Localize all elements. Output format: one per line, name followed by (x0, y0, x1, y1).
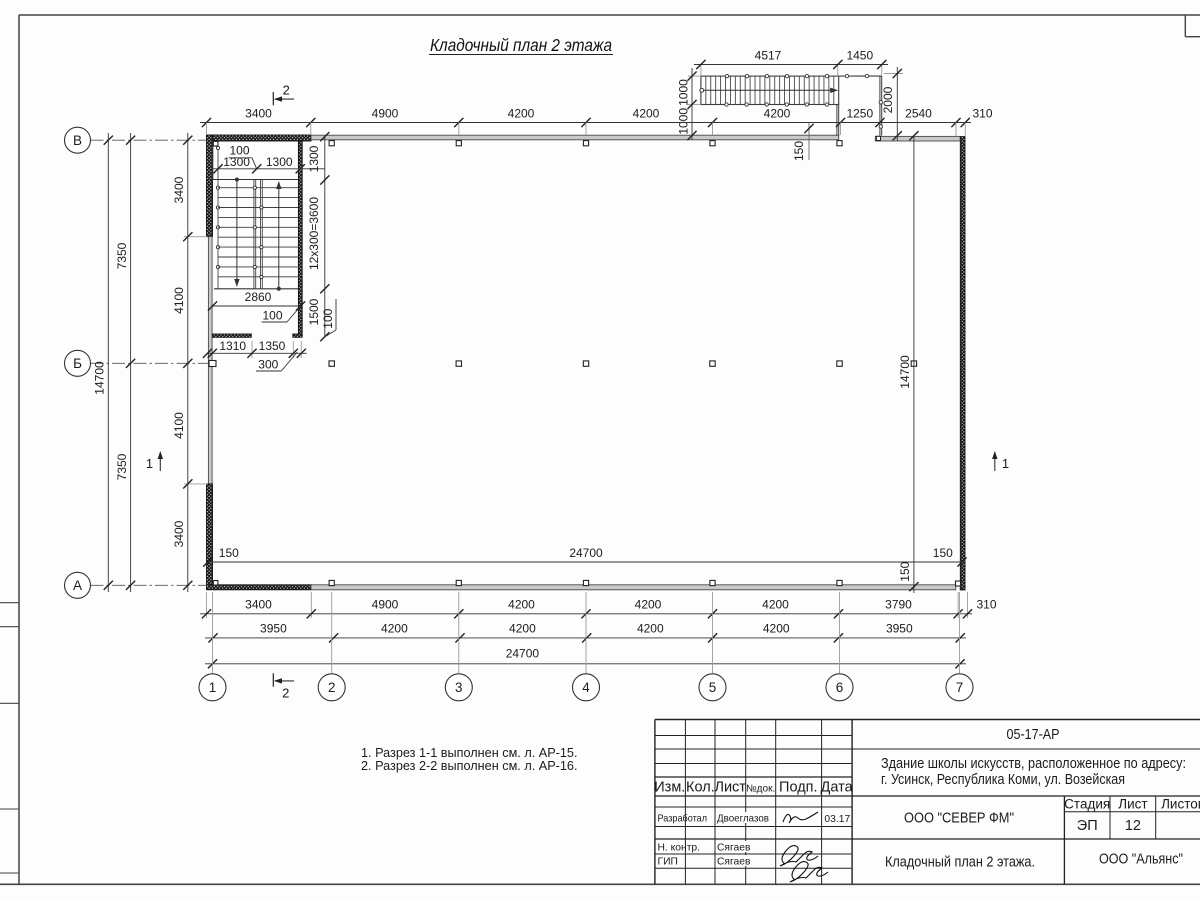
svg-text:4200: 4200 (508, 598, 535, 612)
svg-text:100: 100 (229, 144, 249, 158)
svg-text:4200: 4200 (381, 622, 408, 636)
svg-text:1: 1 (146, 456, 153, 471)
svg-text:Б: Б (73, 356, 82, 371)
svg-text:Лист: Лист (714, 780, 746, 796)
svg-text:Лист: Лист (1118, 796, 1147, 811)
svg-text:А: А (73, 578, 82, 593)
svg-text:1300: 1300 (307, 145, 321, 172)
svg-text:3400: 3400 (172, 176, 186, 203)
svg-text:12х300=3600: 12х300=3600 (307, 197, 321, 270)
svg-text:1000: 1000 (676, 79, 690, 106)
svg-text:1350: 1350 (259, 339, 286, 353)
svg-text:7350: 7350 (115, 453, 129, 480)
svg-text:Здание школы искусств, располо: Здание школы искусств, расположенное по … (881, 756, 1186, 772)
svg-text:ГИП: ГИП (658, 857, 678, 868)
svg-text:Изм.: Изм. (654, 780, 685, 796)
svg-text:2540: 2540 (905, 106, 932, 120)
svg-text:6: 6 (836, 680, 844, 695)
svg-text:Н. контр.: Н. контр. (658, 843, 701, 854)
svg-text:3: 3 (455, 680, 463, 695)
svg-text:4517: 4517 (755, 48, 782, 62)
svg-text:2. Разрез 2-2 выполнен см. л.: 2. Разрез 2-2 выполнен см. л. АР-16. (361, 758, 578, 773)
svg-text:1500: 1500 (307, 298, 321, 325)
svg-text:1310: 1310 (219, 339, 246, 353)
svg-text:4900: 4900 (372, 598, 399, 612)
svg-text:150: 150 (898, 561, 912, 581)
svg-text:1300: 1300 (266, 155, 293, 169)
svg-text:3400: 3400 (172, 520, 186, 547)
svg-text:310: 310 (976, 598, 996, 612)
svg-text:2000: 2000 (881, 86, 895, 113)
svg-text:7350: 7350 (115, 242, 129, 269)
svg-text:100: 100 (321, 308, 335, 328)
svg-text:5: 5 (709, 680, 717, 695)
svg-text:4100: 4100 (172, 287, 186, 314)
svg-text:Кладочный план 2 этажа: Кладочный план 2 этажа (430, 35, 612, 55)
svg-text:1: 1 (1002, 456, 1009, 471)
svg-text:4200: 4200 (633, 106, 660, 120)
svg-text:ЭП: ЭП (1077, 818, 1098, 834)
svg-text:3950: 3950 (886, 622, 913, 636)
svg-text:№док.: №док. (746, 784, 775, 795)
svg-text:14700: 14700 (93, 361, 107, 395)
svg-text:3950: 3950 (260, 622, 287, 636)
svg-text:4: 4 (582, 680, 590, 695)
svg-text:1450: 1450 (846, 48, 873, 62)
svg-text:24700: 24700 (569, 546, 603, 560)
svg-text:2860: 2860 (245, 290, 272, 304)
svg-text:100: 100 (262, 309, 282, 323)
svg-text:4200: 4200 (635, 598, 662, 612)
svg-text:Кол.: Кол. (686, 780, 715, 796)
svg-text:300: 300 (258, 358, 278, 372)
svg-text:14700: 14700 (898, 355, 912, 389)
svg-text:1: 1 (209, 680, 217, 695)
svg-text:150: 150 (792, 141, 806, 161)
svg-text:1000: 1000 (676, 108, 690, 135)
svg-text:Стадия: Стадия (1064, 796, 1110, 811)
svg-text:3790: 3790 (885, 598, 912, 612)
svg-text:2: 2 (328, 680, 336, 695)
svg-text:В: В (73, 133, 82, 148)
svg-text:Сягаев: Сягаев (717, 857, 751, 868)
svg-text:4200: 4200 (764, 106, 791, 120)
svg-text:3400: 3400 (245, 106, 272, 120)
svg-text:3400: 3400 (245, 598, 272, 612)
svg-text:ООО "Альянс": ООО "Альянс" (1099, 852, 1183, 868)
svg-text:4200: 4200 (508, 106, 535, 120)
svg-text:Двоеглазов: Двоеглазов (717, 814, 770, 825)
svg-text:1250: 1250 (846, 106, 873, 120)
svg-text:24700: 24700 (506, 647, 540, 661)
svg-text:03.17: 03.17 (824, 814, 850, 825)
svg-text:Подп.: Подп. (779, 780, 818, 796)
svg-text:4900: 4900 (372, 106, 399, 120)
svg-text:ООО "СЕВЕР ФМ": ООО "СЕВЕР ФМ" (904, 811, 1014, 827)
svg-text:150: 150 (219, 546, 239, 560)
svg-text:4200: 4200 (509, 622, 536, 636)
svg-text:2: 2 (283, 82, 290, 97)
svg-text:4200: 4200 (763, 622, 790, 636)
svg-text:12: 12 (1125, 818, 1141, 834)
svg-text:Сягаев: Сягаев (717, 843, 751, 854)
svg-text:4100: 4100 (172, 412, 186, 439)
svg-text:2: 2 (282, 685, 289, 700)
svg-text:05-17-АР: 05-17-АР (1007, 727, 1060, 743)
svg-text:Дата: Дата (821, 780, 854, 796)
svg-text:4200: 4200 (762, 598, 789, 612)
svg-text:Кладочный план 2 этажа.: Кладочный план 2 этажа. (885, 855, 1035, 871)
svg-text:Разработал: Разработал (658, 813, 708, 825)
svg-text:4200: 4200 (637, 622, 664, 636)
svg-text:150: 150 (933, 546, 953, 560)
svg-text:г. Усинск, Республика Коми, ул: г. Усинск, Республика Коми, ул. Возейска… (881, 772, 1125, 788)
svg-text:7: 7 (956, 680, 964, 695)
svg-text:310: 310 (972, 106, 992, 120)
svg-text:Листов: Листов (1161, 796, 1200, 811)
